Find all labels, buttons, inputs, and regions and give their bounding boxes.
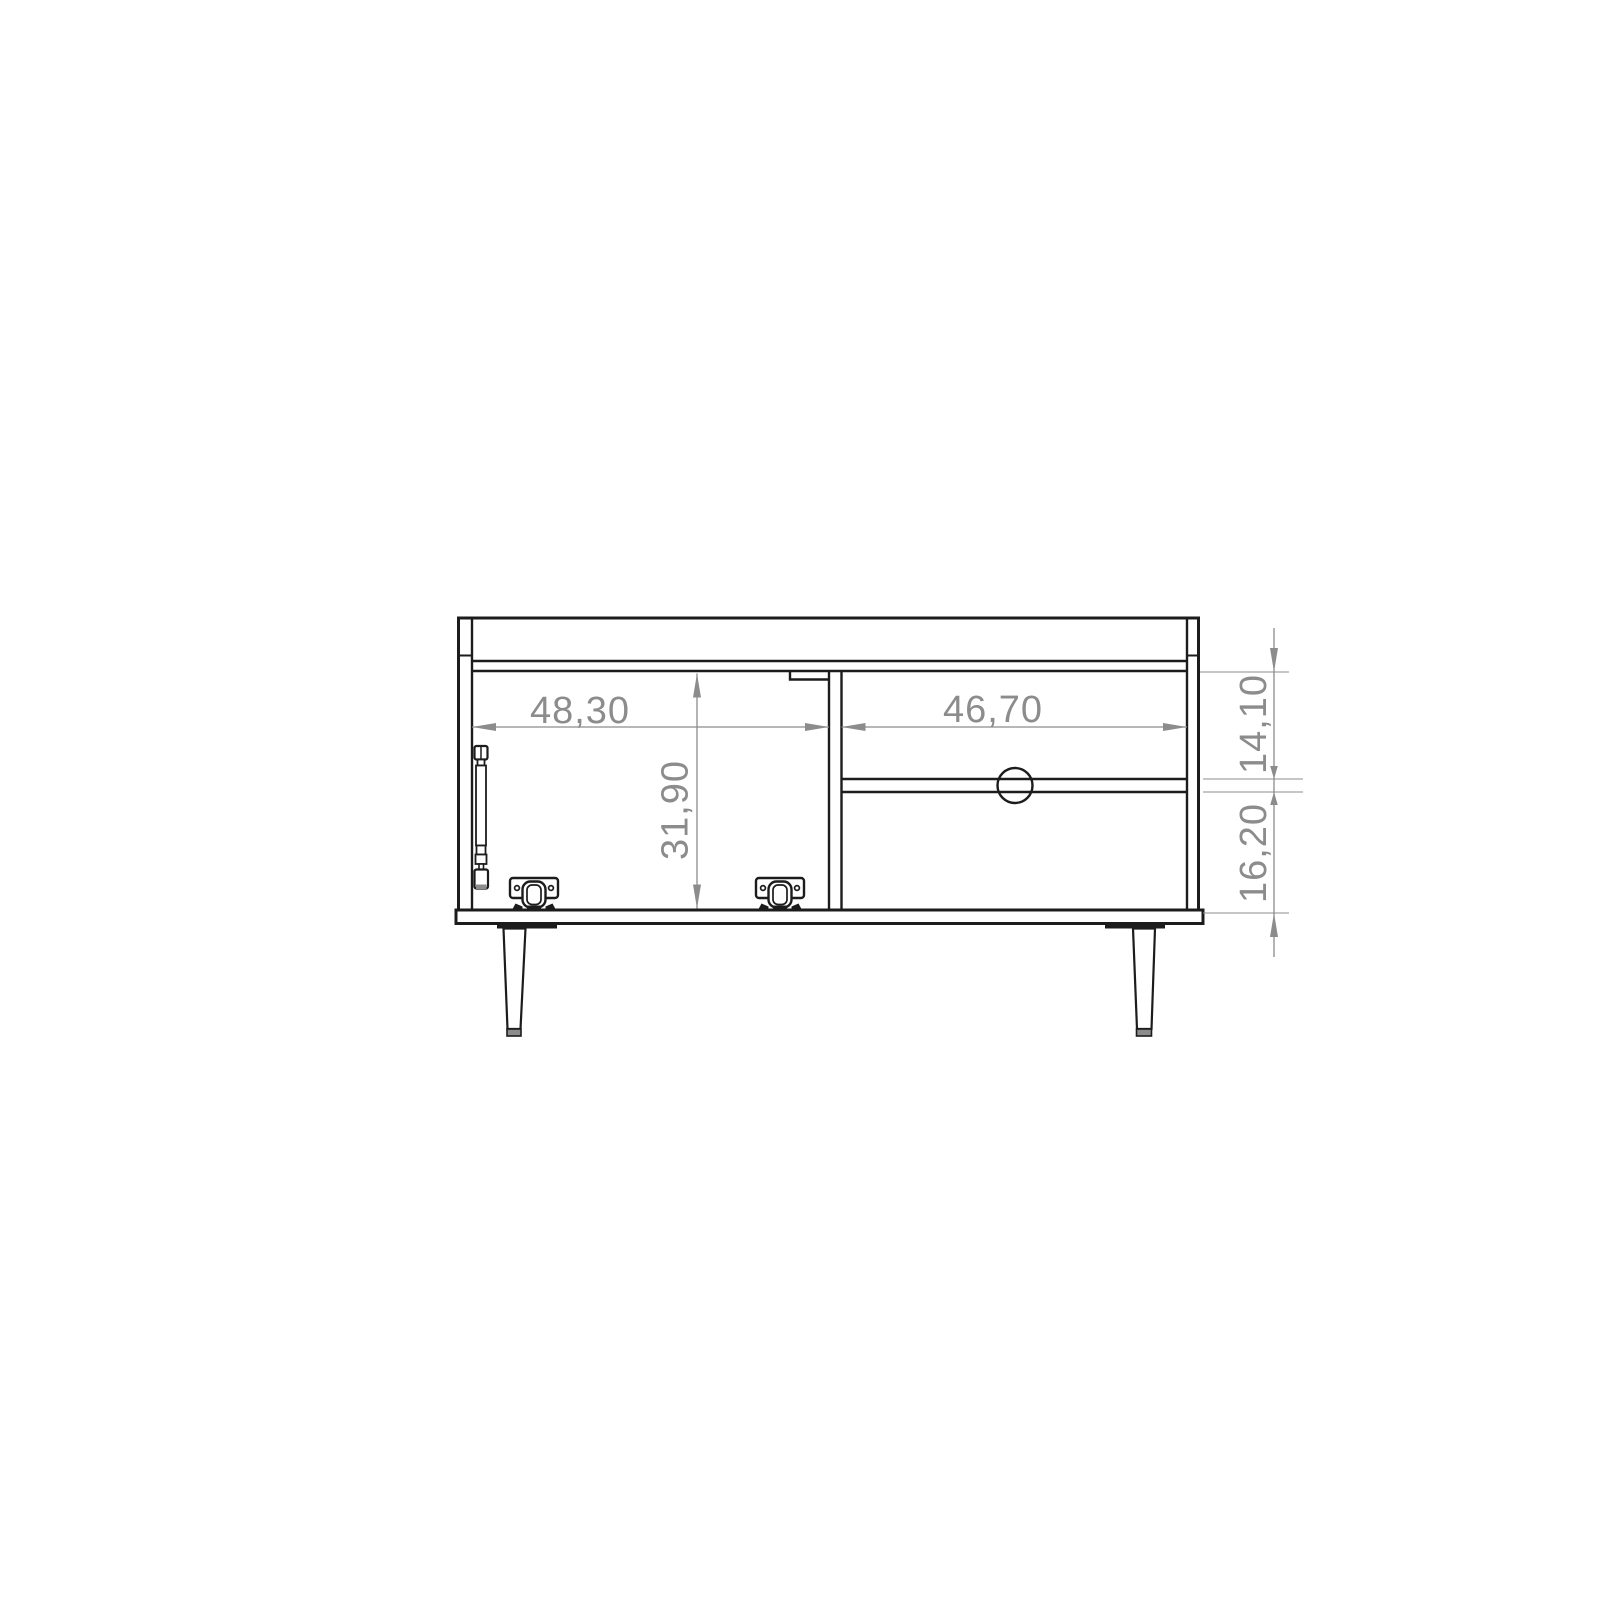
- hinge-left: [510, 878, 558, 911]
- leg-foot-cap: [507, 1029, 521, 1036]
- strut-lower-block: [476, 855, 487, 865]
- leg-body: [504, 929, 526, 1030]
- dim-arrow-up-icon: [1270, 913, 1278, 937]
- hinge-foot: [758, 904, 769, 911]
- dim-arrow-right-icon: [805, 723, 829, 731]
- dim-arrow-left-icon: [472, 723, 496, 731]
- dimension-right-width: 46,70: [842, 689, 1188, 731]
- left-leg: [497, 924, 557, 1037]
- dim-arrow-right-icon: [1163, 723, 1187, 731]
- hinge-screw-hole: [761, 886, 766, 891]
- hinge-foot: [546, 904, 557, 911]
- dim-arrow-left-icon: [842, 723, 866, 731]
- hinge-base-pad: [527, 906, 541, 911]
- dim-arrow-down-icon: [1270, 648, 1278, 672]
- drawing-canvas: 48,30 46,70 31,90 14,10 16,20: [0, 0, 1600, 1600]
- hinge-base-pad: [773, 906, 787, 911]
- hinge-right: [756, 878, 804, 911]
- leg-foot-cap: [1137, 1029, 1152, 1036]
- dimension-left-width: 48,30: [472, 690, 829, 732]
- cable-hole: [998, 768, 1033, 803]
- strut-coupler: [477, 846, 486, 855]
- technical-drawing: 48,30 46,70 31,90 14,10 16,20: [0, 0, 1600, 1600]
- hinge-screw-hole: [795, 886, 800, 891]
- strut-cylinder-shade: [476, 885, 487, 890]
- cabinet-carcass: [456, 618, 1203, 924]
- dimension-right-heights: 14,10 16,20: [1200, 628, 1303, 957]
- strut-rod: [476, 766, 486, 846]
- bottom-panel: [456, 910, 1203, 924]
- dim-arrow-up-icon: [693, 674, 701, 698]
- dim-label-right-width: 46,70: [943, 689, 1043, 731]
- dim-label-right-upper-height: 14,10: [1233, 674, 1275, 774]
- dimension-left-height: 31,90: [655, 674, 702, 909]
- dim-arrow-down-icon: [693, 885, 701, 909]
- dim-label-left-width: 48,30: [530, 690, 630, 732]
- door-top-edge-step: [790, 671, 829, 680]
- hinge-screw-hole: [549, 886, 554, 891]
- hinge-screw-hole: [515, 886, 520, 891]
- leg-body: [1133, 929, 1155, 1030]
- dim-label-left-height: 31,90: [655, 760, 697, 860]
- strut-neck: [478, 760, 485, 766]
- hinge-foot: [512, 904, 523, 911]
- right-leg: [1105, 924, 1165, 1037]
- gas-strut: [475, 746, 489, 889]
- hinge-foot: [792, 904, 803, 911]
- dim-label-right-lower-height: 16,20: [1233, 803, 1275, 903]
